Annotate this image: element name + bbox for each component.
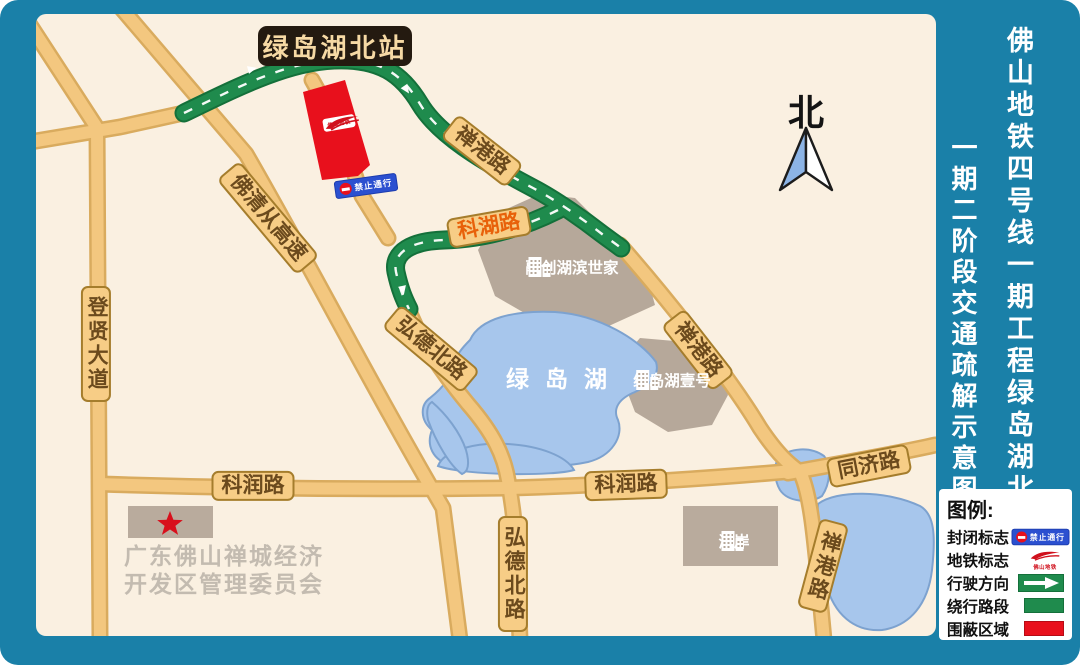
direction-arrow-icon [1018, 574, 1064, 592]
legend-title: 图例: [947, 494, 1064, 523]
building-icon [633, 367, 660, 393]
road-label: 佛清从高速 [216, 160, 319, 275]
no-entry-icon [339, 182, 353, 196]
no-entry-icon [1016, 531, 1027, 542]
metro-logo: 佛山地铁 [322, 114, 356, 132]
road-label: 弘德北路 [498, 516, 528, 632]
metro-logo-text: 佛山地铁 [1033, 562, 1056, 570]
map-area: 绿岛湖北站 北 绿岛湖 广东佛山禅城经济 开发区管理委员会 禅港路科湖路佛清从高… [36, 14, 936, 636]
map-overlays: 绿岛湖北站 北 绿岛湖 广东佛山禅城经济 开发区管理委员会 禅港路科湖路佛清从高… [36, 14, 936, 636]
page-title-line2: 一期二阶段交通疏解示意图 [945, 134, 982, 506]
page-title-line1: 佛山地铁四号线一期工程绿岛湖北站 [999, 26, 1038, 538]
legend-row: 封闭标志禁止通行 [947, 525, 1064, 548]
committee-label: 广东佛山禅城经济 开发区管理委员会 [124, 542, 324, 598]
legend-row: 围蔽区域 [947, 617, 1064, 640]
road-label: 科润路 [584, 468, 668, 501]
road-label: 禅港路 [440, 114, 524, 189]
legend-row-label: 绕行路段 [947, 595, 1009, 617]
committee-line2: 开发区管理委员会 [124, 570, 324, 598]
legend-row-label: 围蔽区域 [947, 618, 1009, 640]
detour-swatch [1024, 598, 1064, 613]
road-label: 弘德北路 [381, 304, 480, 394]
road-label: 登贤大道 [81, 286, 111, 402]
metro-swoosh-icon [1029, 549, 1061, 562]
place-融创湖滨世家: 融创湖滨世家 [525, 254, 618, 278]
closure-sign-text: 禁止通行 [354, 176, 393, 193]
building-icon [718, 528, 745, 554]
closure-sign: 禁止通行 [1012, 528, 1070, 545]
committee-line1: 广东佛山禅城经济 [124, 542, 324, 570]
north-label: 北 [788, 84, 824, 136]
lake-name-label: 绿岛湖 [506, 360, 623, 394]
enclosed-swatch [1024, 621, 1064, 636]
legend-row: 地铁标志佛山地铁 [947, 548, 1064, 571]
legend-row-label: 行驶方向 [947, 572, 1009, 594]
closure-sign: 禁止通行 [334, 173, 399, 200]
road-label: 禅港路 [797, 518, 850, 615]
closure-sign-text: 禁止通行 [1030, 531, 1065, 542]
legend-row-label: 封闭标志 [947, 526, 1009, 548]
place-绿岛湖壹号: 绿岛湖壹号 [633, 367, 711, 391]
station-name-badge: 绿岛湖北站 [258, 26, 412, 66]
road-label: 科湖路 [446, 205, 533, 249]
legend: 图例: 封闭标志禁止通行地铁标志佛山地铁行驶方向绕行路段围蔽区域 [939, 489, 1072, 640]
legend-row: 行驶方向 [947, 571, 1064, 594]
traffic-diversion-map: 绿岛湖北站 北 绿岛湖 广东佛山禅城经济 开发区管理委员会 禅港路科湖路佛清从高… [0, 0, 1080, 665]
building-icon [525, 254, 552, 280]
road-label: 同济路 [825, 443, 912, 488]
road-label: 科润路 [212, 471, 295, 501]
legend-rows: 封闭标志禁止通行地铁标志佛山地铁行驶方向绕行路段围蔽区域 [947, 525, 1064, 640]
legend-row: 绕行路段 [947, 594, 1064, 617]
metro-logo: 佛山地铁 [1026, 547, 1064, 573]
place-涟岸: 涟岸 [718, 528, 749, 552]
legend-row-label: 地铁标志 [947, 549, 1009, 571]
